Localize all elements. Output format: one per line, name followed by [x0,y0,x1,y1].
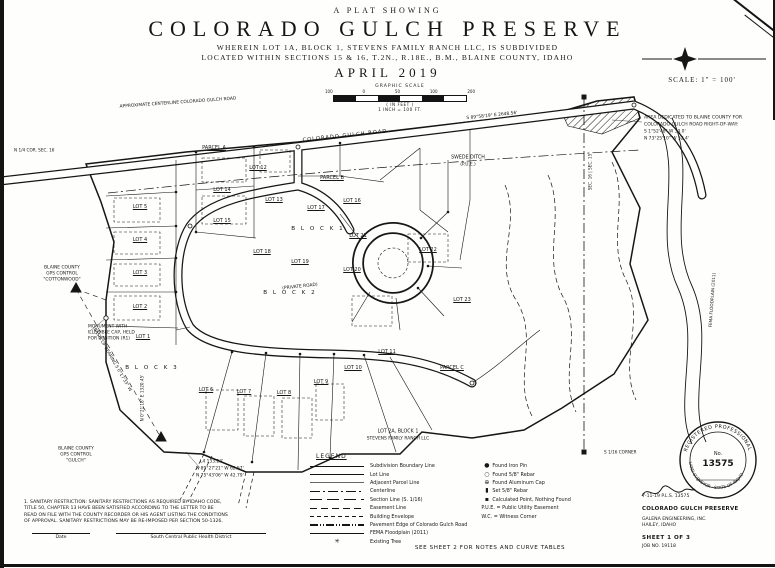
linetype-sample-section [310,499,364,500]
legend-item: ▪Calculated Point, Nothing Found [481,496,570,504]
legend-item: Lot Line [310,470,467,478]
date-signature-line: Date [32,533,90,540]
scale-tick: 50 [395,89,400,94]
note-line: OF APPROVAL. SANITARY RESTRICTIONS MAY B… [24,519,292,525]
legend-item: ●Found Iron Pin [481,462,570,470]
signature-row: Date South Central Public Health Distric… [24,533,292,540]
linetype-sample-adjacent [310,482,364,483]
scale-ratio-note: 1 INCH = 100 FT. [300,107,500,112]
monument-leader [90,318,106,331]
legend-item: ○Found 5/8" Rebar [481,470,570,478]
cul-de-sac-island [378,248,408,278]
aluminum-cap-icon: ⊕ [481,480,492,486]
floodplain-lines [505,162,636,416]
seal-number: 13575 [702,459,733,469]
legend-item: Adjacent Parcel Line [310,479,467,487]
legend: LEGEND Subdivision Boundary Line Lot Lin… [310,453,650,546]
legend-abbrev: P.U.E. = Public Utility Easement [481,504,570,512]
titleblock-project: COLORADO GULCH PRESERVE [642,506,772,512]
plat-sheet: { "header": { "eyebrow": "A PLAT SHOWING… [0,0,775,568]
legend-item: Section Line (S. 1/16) [310,496,467,504]
legend-item: Pavement Edge of Colorado Gulch Road [310,521,467,529]
tree-icon: ✳ [310,538,364,545]
legend-symbols: ●Found Iron Pin ○Found 5/8" Rebar ⊕Found… [481,462,570,546]
surveyor-date-pls: 7-11-19 P.L.S. 13575 [642,494,772,500]
legend-abbrev: W.C. = Witness Corner [481,512,570,520]
control-lines [76,289,161,438]
sanitary-restriction-note: 1. SANITARY RESTRICTION: SANITARY RESTRI… [24,500,292,540]
legend-item: Centerline [310,487,467,495]
seal-top-text: REGISTERED PROFESSIONAL [683,424,752,453]
legend-item: FEMA Floodplain (2011) [310,529,467,537]
svg-text:REGISTERED PROFESSIONAL: REGISTERED PROFESSIONAL [683,424,752,453]
set-rebar-icon: ▮ [481,488,492,494]
scale-tick: 100 [325,89,333,94]
scale-text: SCALE: 1" = 100' [632,76,772,84]
scale-tick: 0 [363,89,366,94]
scan-edge-left [0,0,4,568]
legend-item: Building Envelope [310,512,467,520]
scale-tick: 200 [467,89,475,94]
linetype-sample-pavement [310,524,364,525]
scan-edge-bottom [4,564,775,567]
survey-monuments [71,95,636,454]
legend-item: Subdivision Boundary Line [310,462,467,470]
linetype-sample-lot [310,474,364,475]
legend-item: Easement Line [310,504,467,512]
lot-lines [106,130,540,470]
found-rebar-icon: ○ [481,472,492,478]
legend-item: ▮Set 5/8" Rebar [481,487,570,495]
legend-linetypes: Subdivision Boundary Line Lot Line Adjac… [310,462,467,546]
linetype-sample-boundary [310,466,364,467]
legend-title: LEGEND [316,453,650,460]
found-iron-pin-icon: ● [481,463,492,469]
job-number: JOB NO. 19118 [642,544,772,550]
seal-no-label: No. [714,451,723,457]
graphic-scale-ticks: 100 0 50 100 200 [325,89,475,94]
linetype-sample-centerline [310,491,364,492]
sheet-number: SHEET 1 OF 3 [642,535,772,541]
see-sheet-note: SEE SHEET 2 FOR NOTES AND CURVE TABLES [370,545,610,551]
calculated-point-icon: ▪ [481,497,492,503]
linetype-sample-floodplain [310,533,364,534]
graphic-scale-bar [333,95,467,102]
title-block: 7-11-19 P.L.S. 13575 COLORADO GULCH PRES… [642,494,772,550]
scale-tick: 100 [430,89,438,94]
plat-eyebrow: A PLAT SHOWING [0,6,775,15]
titleblock-city: HAILEY, IDAHO [642,523,772,529]
legend-item: ⊕Found Aluminum Cap [481,479,570,487]
graphic-scale: GRAPHIC SCALE 100 0 50 100 200 ( IN FEET… [300,84,500,112]
linetype-sample-easement [310,508,364,509]
health-district-signature-line: South Central Public Health District [116,533,266,540]
plat-title: COLORADO GULCH PRESERVE [0,16,775,42]
linetype-sample-envelope [310,516,364,517]
north-arrow-icon [628,46,775,74]
